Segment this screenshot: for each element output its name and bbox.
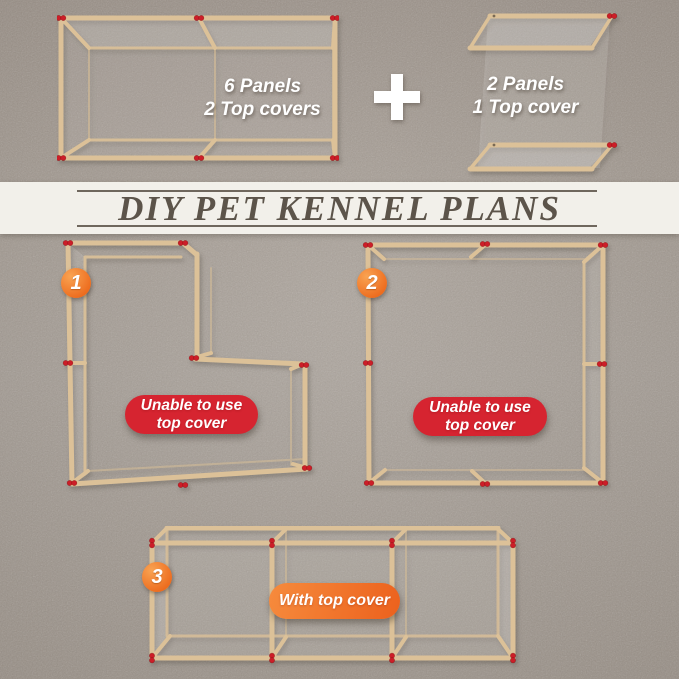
label-line: 2 Panels xyxy=(453,73,598,96)
plan1-note-pill: Unable to use top cover xyxy=(125,395,258,434)
plan2-square-illustration xyxy=(352,240,617,490)
plan3-note-pill: With top cover xyxy=(269,583,400,619)
plan2-number-badge: 2 xyxy=(357,268,387,298)
label-line: 1 Top cover xyxy=(453,96,598,119)
note-line: Unable to use xyxy=(141,397,243,415)
title-banner: DIY PET KENNEL PLANS xyxy=(0,182,679,234)
plan2-note-pill: Unable to use top cover xyxy=(413,397,547,436)
note-line: top cover xyxy=(157,415,227,433)
plan1-lshape-illustration xyxy=(55,238,320,493)
corner-connectors xyxy=(363,241,608,486)
six-panel-label: 6 Panels 2 Top covers xyxy=(190,75,335,121)
label-line: 2 Top covers xyxy=(190,98,335,121)
plan-number: 1 xyxy=(70,272,81,295)
two-panel-label: 2 Panels 1 Top cover xyxy=(453,73,598,119)
note-line: With top cover xyxy=(279,592,390,610)
banner-rule xyxy=(77,225,597,227)
label-line: 6 Panels xyxy=(190,75,335,98)
product-image: 6 Panels 2 Top covers 2 Panels 1 Top cov… xyxy=(0,0,679,679)
plus-icon xyxy=(374,74,420,120)
plan3-number-badge: 3 xyxy=(142,562,172,592)
plan-number: 3 xyxy=(151,566,162,589)
note-line: Unable to use xyxy=(429,399,531,417)
plan-number: 2 xyxy=(366,272,377,295)
banner-rule xyxy=(77,190,597,192)
plan1-number-badge: 1 xyxy=(61,268,91,298)
note-line: top cover xyxy=(445,417,515,435)
